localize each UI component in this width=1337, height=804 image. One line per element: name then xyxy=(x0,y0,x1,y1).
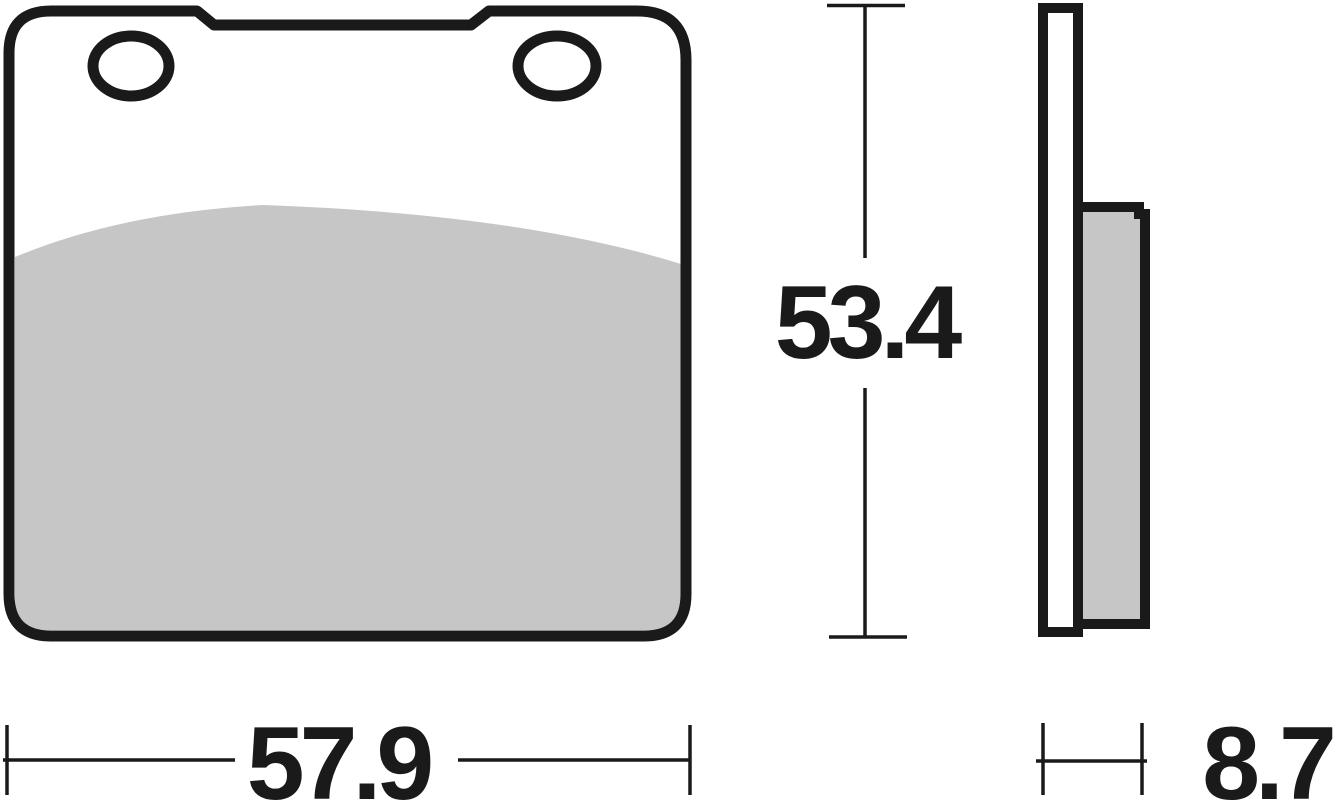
friction-material-side xyxy=(1078,207,1145,624)
thickness-dim-value: 8.7 xyxy=(1202,706,1333,804)
width-dimension: 57.9 xyxy=(3,706,690,804)
front-view xyxy=(9,11,686,636)
diagram-canvas: 53.4 57.9 8.7 xyxy=(0,0,1337,804)
thickness-dimension: 8.7 xyxy=(1036,706,1333,804)
height-dim-value: 53.4 xyxy=(775,265,963,381)
brake-pad-technical-drawing: 53.4 57.9 8.7 xyxy=(0,0,1337,804)
side-view xyxy=(1043,8,1145,632)
width-dim-value: 57.9 xyxy=(247,706,431,804)
mounting-hole-left xyxy=(93,36,169,96)
mounting-hole-right xyxy=(518,36,596,96)
friction-material-front xyxy=(15,205,681,630)
height-dimension: 53.4 xyxy=(775,6,963,638)
backing-plate-side xyxy=(1043,8,1078,632)
